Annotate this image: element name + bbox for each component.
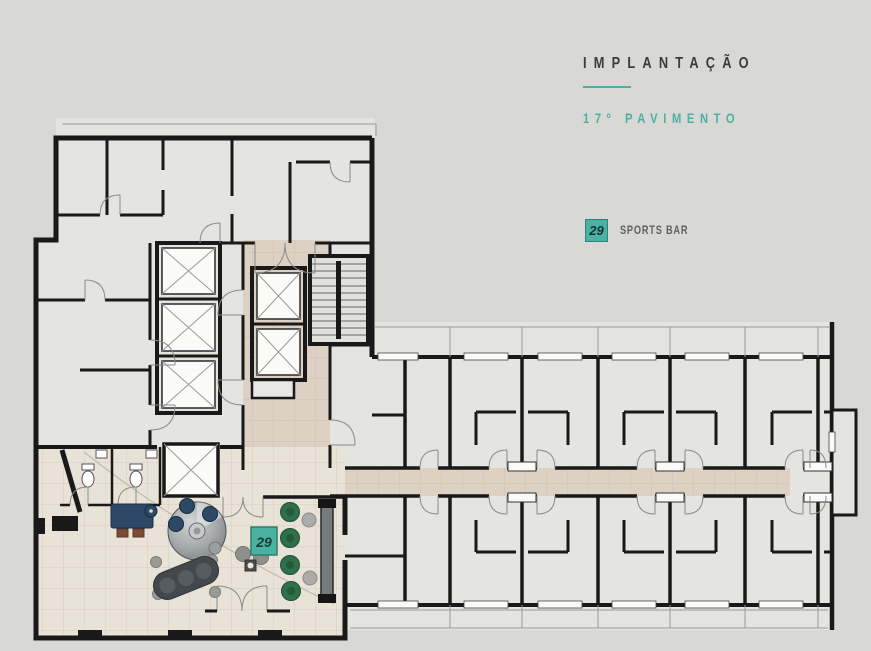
bar-stool bbox=[203, 507, 218, 522]
bar-stool bbox=[169, 517, 184, 532]
long-counter bbox=[318, 499, 336, 603]
bench bbox=[52, 516, 78, 531]
wall-column bbox=[168, 630, 192, 638]
legend-number-badge: 29 bbox=[585, 219, 608, 242]
title-divider bbox=[583, 86, 631, 88]
wall-column bbox=[36, 518, 45, 534]
door-gap bbox=[829, 432, 835, 452]
duct-shaft bbox=[252, 380, 294, 398]
page-title-text: IMPLANTAÇÃO bbox=[583, 55, 756, 73]
plan-marker: 29 bbox=[251, 527, 277, 555]
floor-subtitle: 17º PAVIMENTO bbox=[583, 110, 853, 126]
bar-stool bbox=[209, 542, 221, 554]
side-table bbox=[302, 513, 316, 527]
bar-stool bbox=[180, 499, 195, 514]
wall-column bbox=[258, 630, 282, 638]
side-table bbox=[303, 571, 317, 585]
stair-rail bbox=[336, 261, 341, 339]
page: 29 IMPLANTAÇÃO 17º PAVIMENTO 29 SPORTS B… bbox=[0, 0, 871, 651]
info-panel: IMPLANTAÇÃO 17º PAVIMENTO 29 SPORTS BAR bbox=[583, 55, 853, 126]
legend-row: 29 SPORTS BAR bbox=[585, 219, 705, 242]
wood-chair bbox=[133, 529, 144, 537]
wood-chair bbox=[117, 529, 128, 537]
wall-column bbox=[78, 630, 102, 638]
legend-label: SPORTS BAR bbox=[620, 225, 705, 237]
plan-marker-number: 29 bbox=[255, 534, 272, 550]
page-title: IMPLANTAÇÃO bbox=[583, 55, 853, 73]
staircase bbox=[310, 256, 368, 344]
east-protrusion bbox=[829, 410, 856, 515]
floor-subtitle-text: 17º PAVIMENTO bbox=[583, 110, 740, 126]
